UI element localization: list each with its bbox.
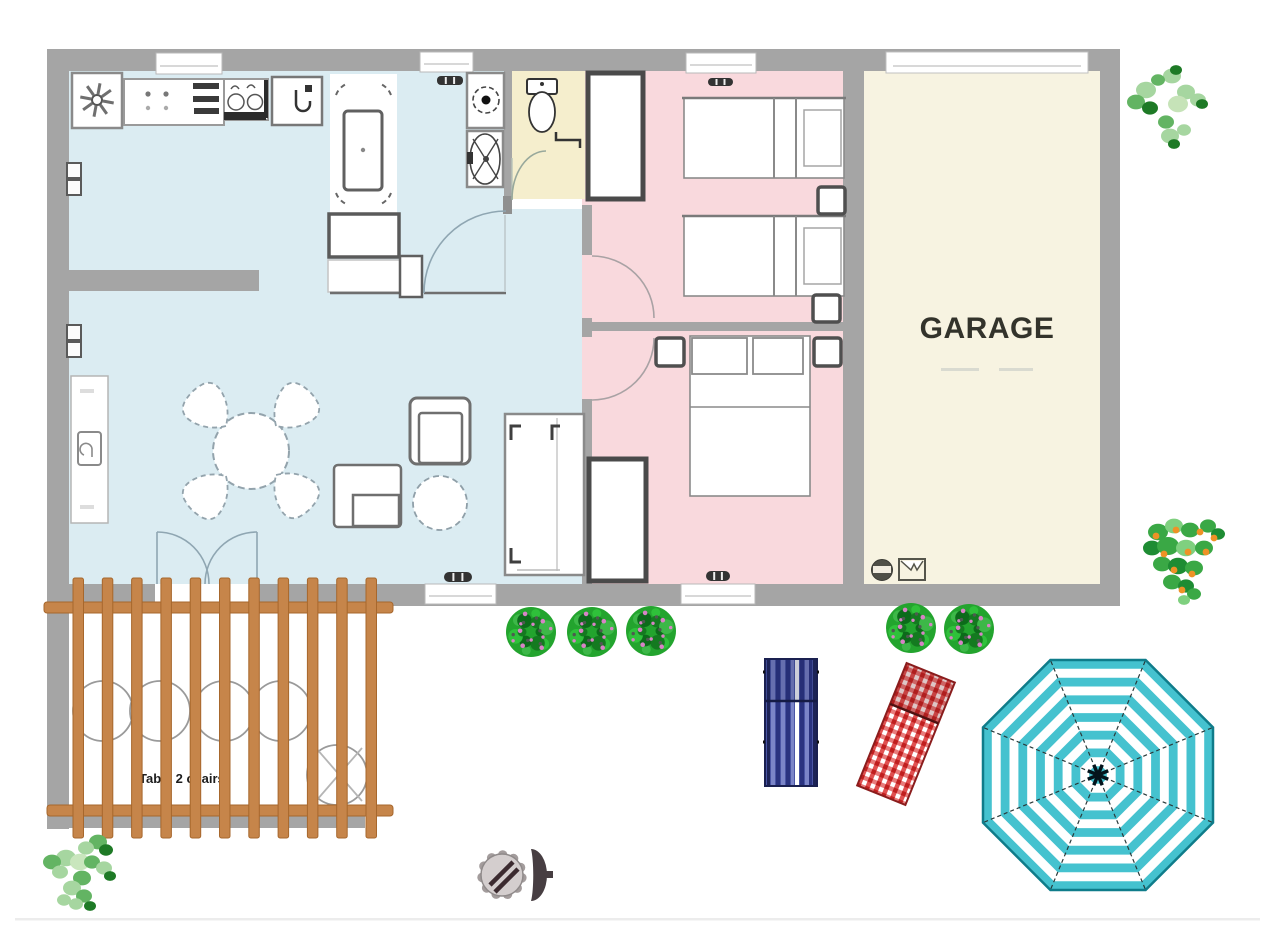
svg-text:GARAGE: GARAGE: [920, 312, 1055, 345]
svg-text:Table 2 chairs: Table 2 chairs: [139, 771, 225, 786]
